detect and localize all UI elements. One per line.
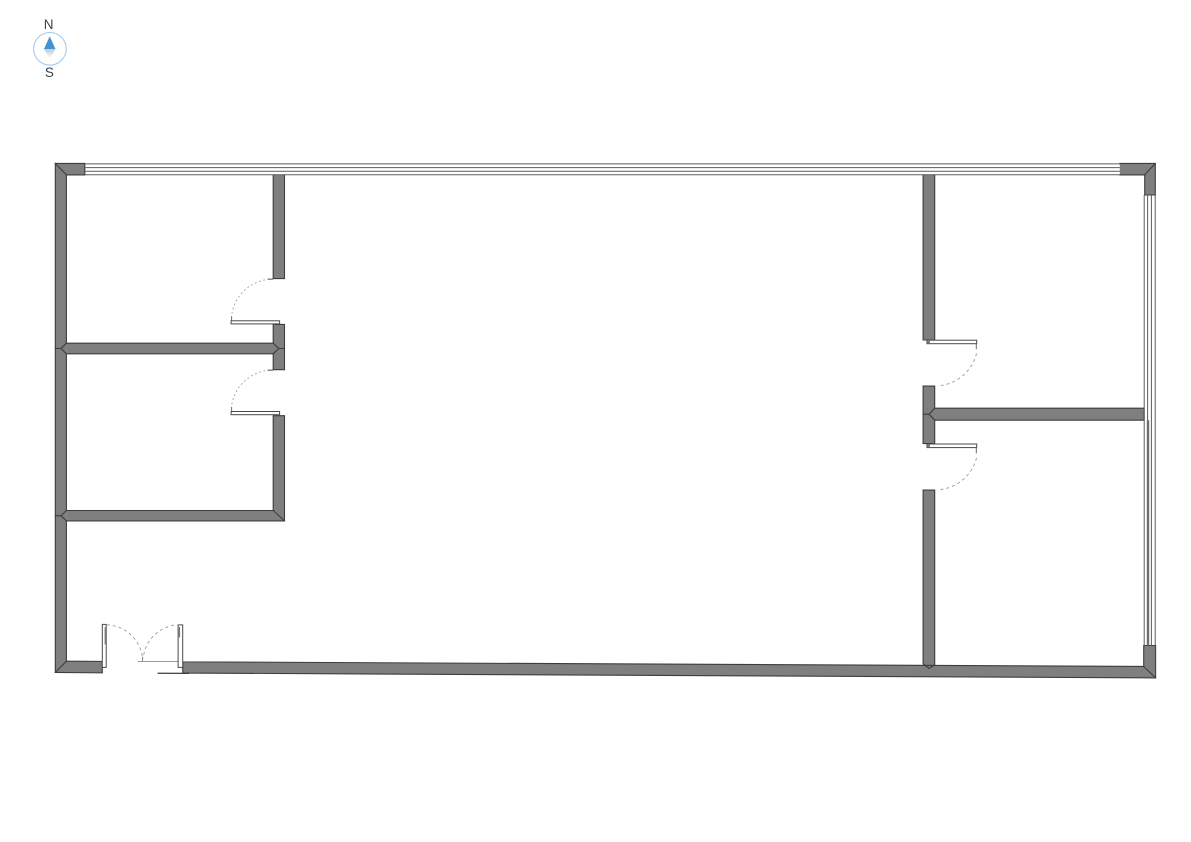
svg-text:N: N xyxy=(44,17,54,32)
svg-text:S: S xyxy=(45,65,54,80)
